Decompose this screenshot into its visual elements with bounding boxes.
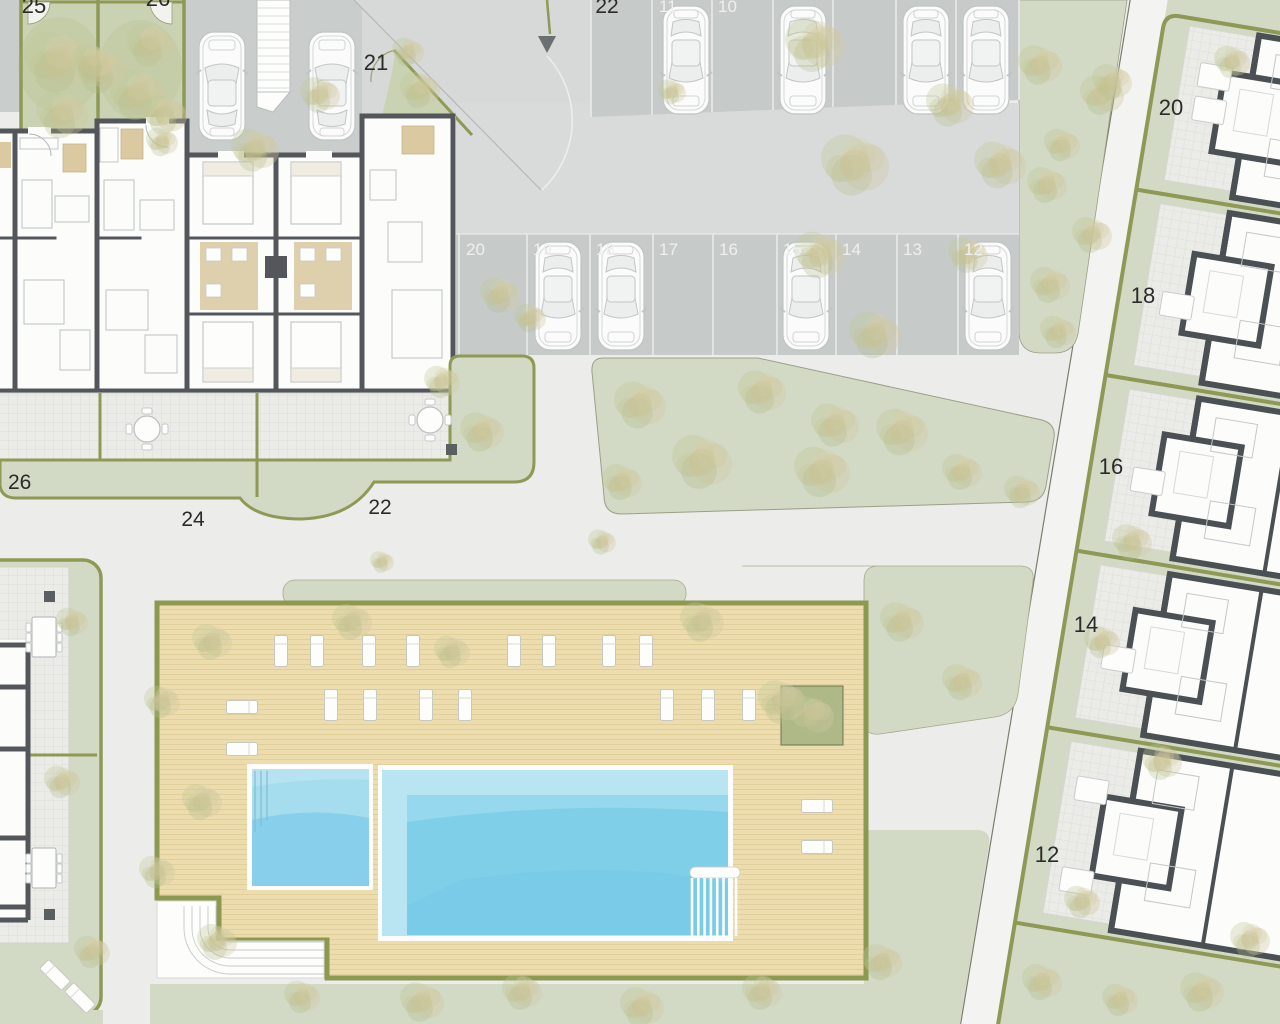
svg-text:12: 12	[1035, 842, 1059, 867]
svg-text:20: 20	[466, 240, 485, 259]
svg-text:21: 21	[364, 50, 388, 75]
svg-text:26: 26	[8, 471, 31, 494]
svg-text:26: 26	[146, 0, 170, 11]
svg-text:16: 16	[1099, 454, 1123, 479]
svg-text:18: 18	[1131, 283, 1155, 308]
svg-text:20: 20	[1159, 95, 1183, 120]
svg-text:19: 19	[533, 240, 552, 259]
svg-text:15: 15	[783, 240, 802, 259]
svg-text:11: 11	[659, 0, 677, 16]
svg-text:25: 25	[22, 0, 46, 18]
svg-text:14: 14	[1074, 612, 1098, 637]
svg-text:17: 17	[659, 240, 678, 259]
svg-text:22: 22	[368, 496, 391, 519]
svg-text:12: 12	[964, 240, 983, 259]
svg-text:16: 16	[719, 240, 738, 259]
svg-text:13: 13	[903, 240, 922, 259]
svg-text:22: 22	[595, 0, 618, 18]
svg-text:10: 10	[718, 0, 737, 16]
svg-text:14: 14	[842, 240, 861, 259]
svg-text:24: 24	[181, 508, 205, 531]
svg-text:18: 18	[596, 240, 615, 259]
